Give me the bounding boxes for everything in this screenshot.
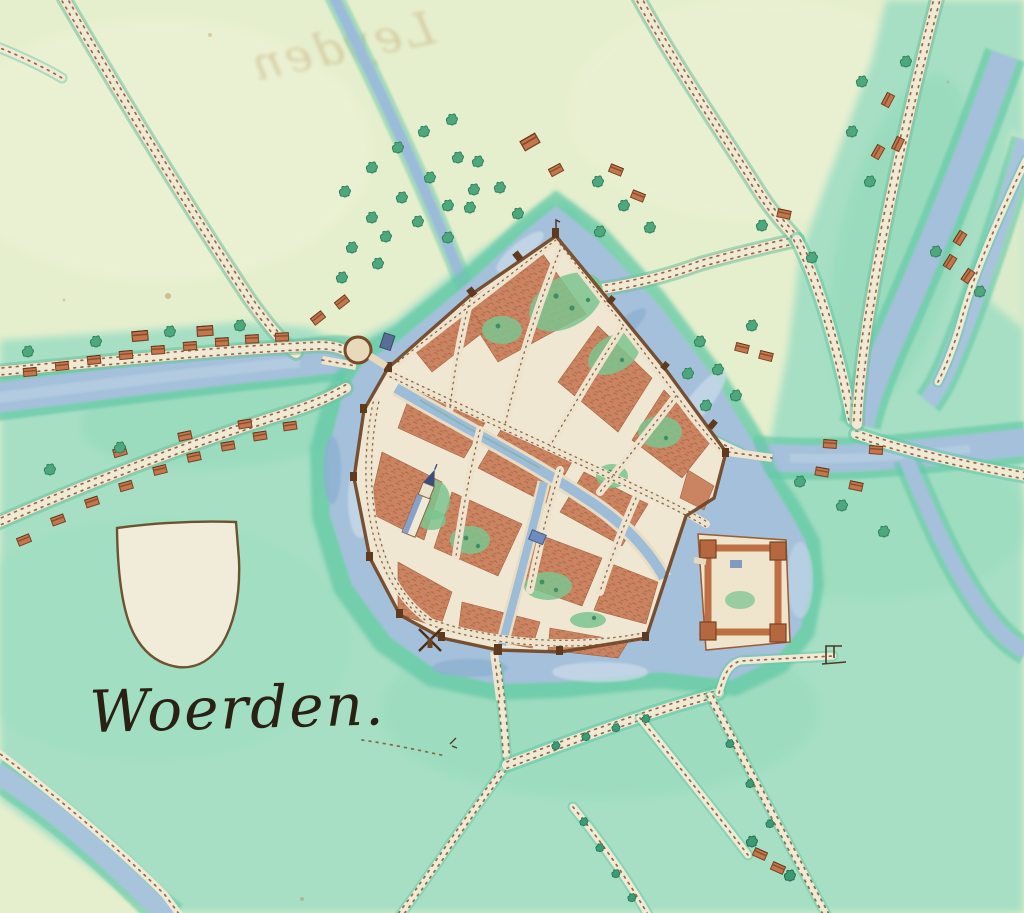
house-icon <box>55 361 69 370</box>
house-icon <box>197 326 213 337</box>
house-icon <box>119 350 133 359</box>
house-icon <box>283 421 297 431</box>
map-viewport: Leyden <box>0 0 1024 913</box>
house-icon <box>253 431 267 441</box>
house-icon <box>245 335 258 344</box>
town-label: Woerden. <box>89 670 387 746</box>
house-icon <box>221 441 235 451</box>
house-icon <box>869 446 883 455</box>
map-image[interactable]: Leyden <box>0 0 1024 913</box>
castle-garden <box>725 591 755 609</box>
house-icon <box>823 440 837 449</box>
house-icon <box>87 355 101 364</box>
house-icon <box>183 342 197 351</box>
castle <box>694 534 790 650</box>
house-icon <box>215 338 228 347</box>
house-icon <box>132 331 148 342</box>
castle-blue-roof <box>730 560 742 568</box>
house-icon <box>23 367 37 376</box>
house-icon <box>275 333 288 341</box>
house-icon <box>151 346 165 355</box>
house-icon <box>238 419 252 429</box>
castle-bridge <box>694 560 706 562</box>
house-icon <box>815 467 829 477</box>
